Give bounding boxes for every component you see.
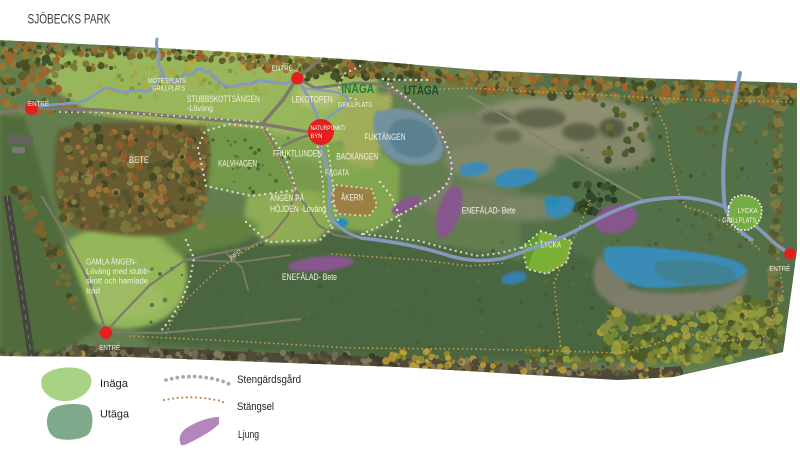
svg-text:ENTRÉ: ENTRÉ (99, 343, 120, 352)
svg-text:ENEFÄLAD- Bete: ENEFÄLAD- Bete (462, 206, 516, 216)
svg-text:FÄGATA: FÄGATA (325, 168, 349, 178)
svg-text:ENEFÄLAD- Bete: ENEFÄLAD- Bete (282, 272, 337, 282)
svg-text:KALVHAGEN: KALVHAGEN (218, 159, 257, 169)
svg-text:Stengärdsgård: Stengärdsgård (237, 374, 301, 386)
svg-text:ÅKERN: ÅKERN (341, 193, 363, 203)
svg-text:Inäga: Inäga (100, 378, 129, 390)
svg-text:GAMLA ÄNGEN-: GAMLA ÄNGEN- (86, 257, 137, 266)
svg-text:ENTRÉ: ENTRÉ (28, 99, 49, 108)
svg-text:-Löväng: -Löväng (187, 103, 213, 113)
svg-text:FUKTÄNGEN: FUKTÄNGEN (365, 132, 406, 142)
svg-text:skott och hamlade: skott och hamlade (86, 277, 149, 286)
svg-text:Löväng med stubb-: Löväng med stubb- (86, 267, 150, 276)
svg-text:NATURPUNKT/: NATURPUNKT/ (311, 125, 346, 132)
svg-text:ENTRÉ: ENTRÉ (272, 64, 293, 73)
svg-text:Ljung: Ljung (238, 429, 259, 441)
svg-text:ÄNGEN PÅ: ÄNGEN PÅ (270, 193, 304, 203)
svg-text:BACKÄNGEN: BACKÄNGEN (336, 152, 378, 162)
svg-text:LEKOTOPEN: LEKOTOPEN (292, 95, 333, 105)
svg-text:INÄGA: INÄGA (341, 81, 374, 96)
svg-text:BYN: BYN (311, 133, 323, 140)
svg-text:LYCKA: LYCKA (541, 241, 562, 250)
svg-text:GRILLPLATS: GRILLPLATS (338, 100, 372, 109)
svg-text:Utäga: Utäga (100, 409, 130, 421)
svg-text:SJÖBECKS PARK: SJÖBECKS PARK (28, 10, 111, 27)
svg-text:träd: träd (86, 286, 100, 295)
svg-text:HÖJDEN -Löväng: HÖJDEN -Löväng (270, 204, 326, 214)
svg-text:FRUKTLUNDEN: FRUKTLUNDEN (273, 149, 322, 159)
svg-text:Stängsel: Stängsel (237, 401, 274, 413)
svg-text:ENTRÉ: ENTRÉ (769, 264, 790, 273)
svg-text:GRILLPLATS: GRILLPLATS (722, 218, 756, 225)
svg-text:GRILLPLATS: GRILLPLATS (152, 84, 185, 93)
svg-text:UTÄGA: UTÄGA (404, 83, 439, 98)
svg-text:BETE: BETE (129, 155, 149, 165)
svg-text:LYCKA: LYCKA (738, 206, 758, 215)
